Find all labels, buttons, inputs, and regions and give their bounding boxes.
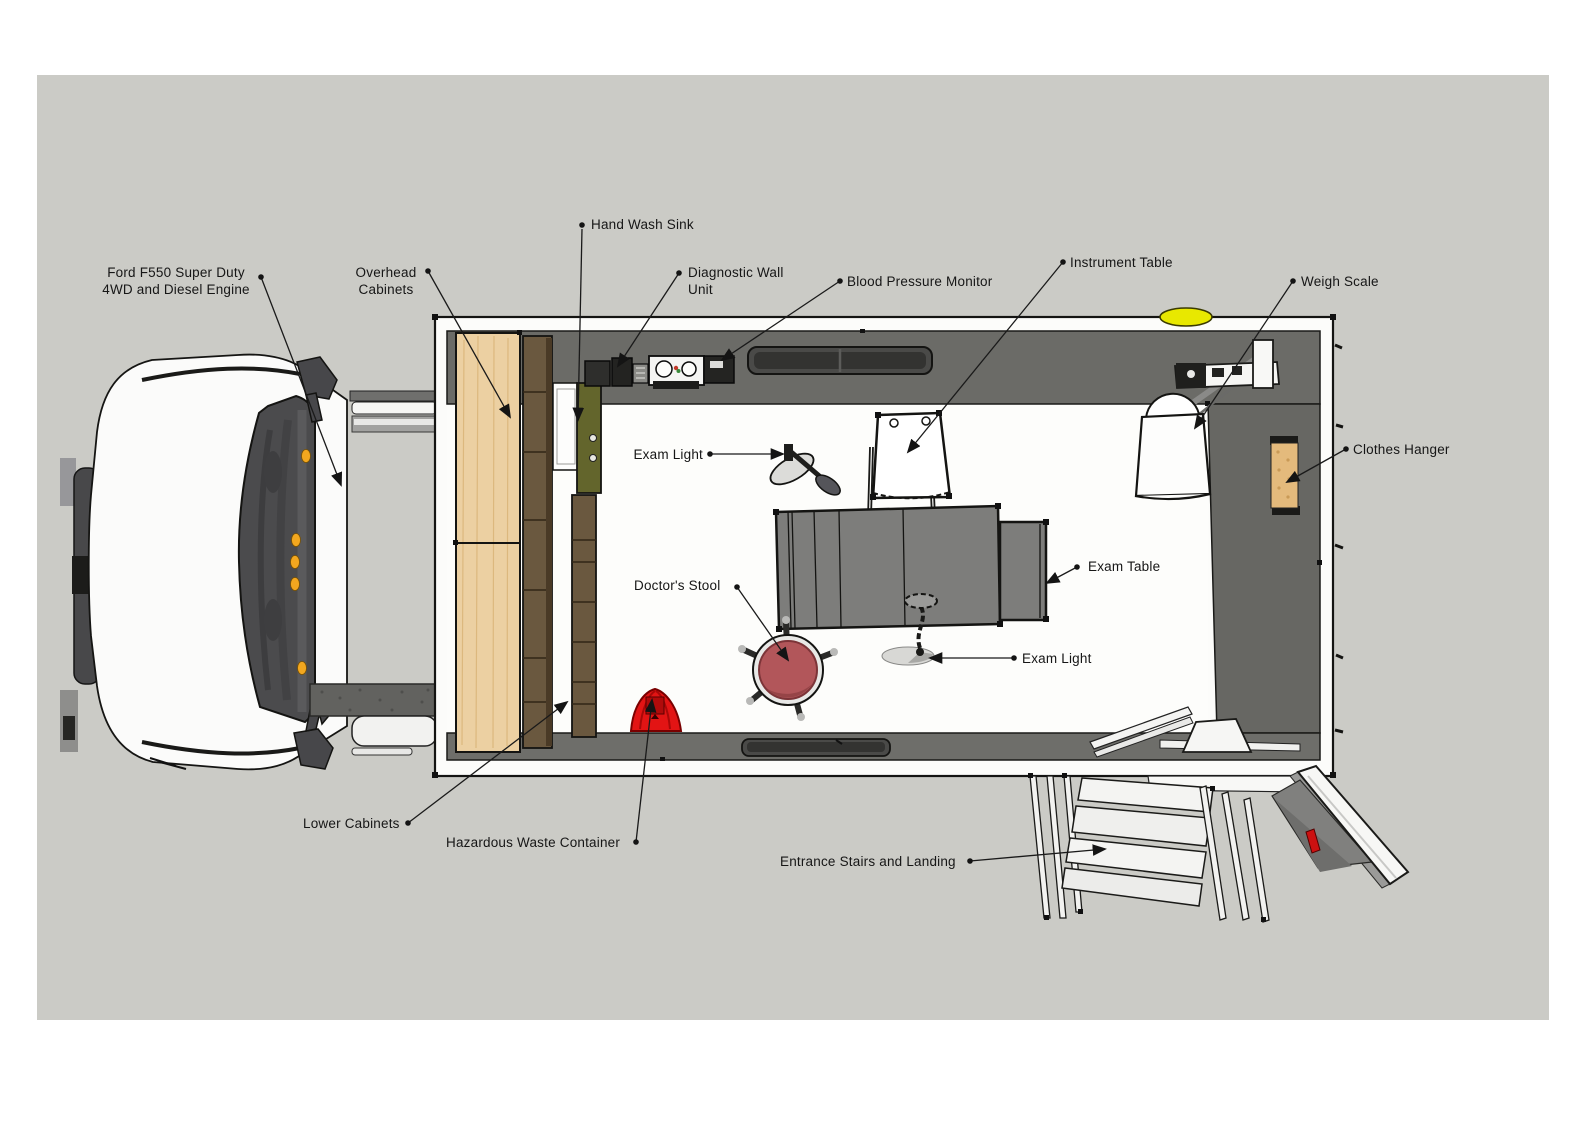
label-doctors-stool: Doctor's Stool	[634, 577, 720, 594]
diagram-page: Ford F550 Super Duty 4WD and Diesel Engi…	[0, 0, 1587, 1122]
label-hand-wash-sink: Hand Wash Sink	[591, 216, 694, 233]
label-entrance-stairs: Entrance Stairs and Landing	[780, 853, 956, 870]
exam-table-shape	[773, 503, 1049, 632]
label-ford-f550: Ford F550 Super Duty 4WD and Diesel Engi…	[88, 264, 264, 298]
clothes-hanger-shape	[1270, 436, 1300, 515]
label-clothes-hanger: Clothes Hanger	[1353, 441, 1450, 458]
label-instrument-table: Instrument Table	[1070, 254, 1173, 271]
label-overhead-cabinets: Overhead Cabinets	[348, 264, 424, 298]
floorplan-drawing	[0, 0, 1587, 1122]
label-hazardous-waste-container: Hazardous Waste Container	[446, 834, 620, 851]
label-diagnostic-wall-unit: Diagnostic Wall Unit	[688, 264, 784, 298]
label-exam-table: Exam Table	[1088, 558, 1160, 575]
overhead-cabinets-shape	[453, 330, 522, 752]
roof-light	[1160, 308, 1212, 326]
label-blood-pressure-monitor: Blood Pressure Monitor	[847, 273, 992, 290]
label-exam-light-left: Exam Light	[600, 446, 703, 463]
label-lower-cabinets: Lower Cabinets	[303, 815, 400, 832]
label-exam-light-center: Exam Light	[1022, 650, 1092, 667]
supply-tray-bottom	[742, 739, 890, 756]
supply-tray-top	[748, 347, 932, 374]
label-weigh-scale: Weigh Scale	[1301, 273, 1379, 290]
